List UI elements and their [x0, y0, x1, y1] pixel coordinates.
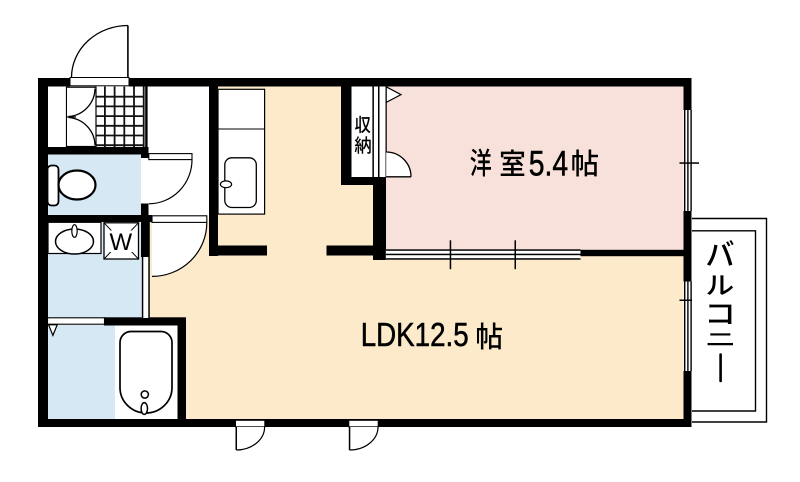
svg-text:5.4: 5.4: [529, 145, 568, 184]
svg-text:LDK12.5: LDK12.5: [361, 316, 469, 353]
svg-text:W: W: [110, 229, 133, 256]
